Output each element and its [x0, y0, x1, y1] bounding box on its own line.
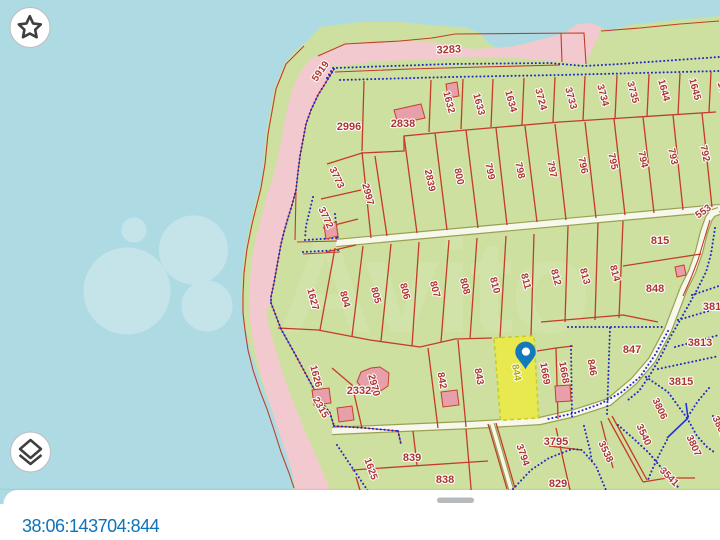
- svg-text:3795: 3795: [544, 436, 568, 448]
- svg-text:847: 847: [623, 344, 641, 356]
- svg-text:3283: 3283: [436, 43, 461, 56]
- svg-text:838: 838: [436, 474, 454, 486]
- svg-text:381: 381: [703, 301, 720, 313]
- svg-text:2332: 2332: [347, 385, 371, 397]
- svg-text:3813: 3813: [688, 337, 712, 349]
- svg-text:829: 829: [549, 478, 567, 490]
- svg-text:38:06:143704:844: 38:06:143704:844: [22, 516, 160, 536]
- svg-text:2838: 2838: [391, 118, 415, 130]
- svg-text:2996: 2996: [337, 121, 361, 133]
- svg-text:848: 848: [646, 283, 664, 295]
- svg-text:815: 815: [651, 235, 669, 247]
- svg-text:839: 839: [403, 452, 421, 464]
- svg-text:3815: 3815: [669, 376, 693, 388]
